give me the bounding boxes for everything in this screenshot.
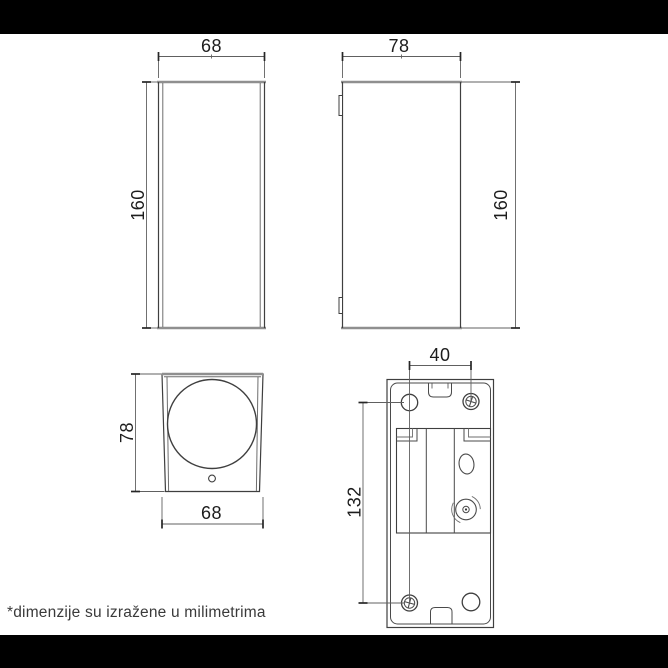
top-letterbox-bar bbox=[0, 0, 668, 34]
units-footnote: *dimenzije su izražene u milimetrima bbox=[7, 604, 427, 622]
top-width-dim-label: 68 bbox=[201, 503, 222, 523]
back-view: 40 132 bbox=[345, 345, 494, 628]
side-depth-dim-label: 78 bbox=[388, 36, 409, 56]
top-width-dimension: 68 bbox=[162, 497, 263, 529]
back-hole-height-dim-label: 132 bbox=[345, 486, 365, 518]
lens-circle bbox=[168, 380, 257, 469]
terminal-center-dot bbox=[465, 508, 467, 510]
mounting-hole-bottom-right bbox=[462, 593, 480, 611]
side-depth-dimension: 78 bbox=[343, 36, 461, 78]
top-view: 78 68 bbox=[117, 374, 263, 529]
front-height-dimension: 160 bbox=[128, 82, 157, 328]
bottom-letterbox-bar bbox=[0, 635, 668, 668]
front-view-body bbox=[159, 82, 265, 328]
side-height-dimension: 160 bbox=[462, 82, 520, 328]
back-outer-outline bbox=[387, 380, 494, 628]
technical-drawing-page: 68 160 78 bbox=[0, 0, 668, 668]
front-view: 68 160 bbox=[128, 36, 266, 328]
top-depth-dimension: 78 bbox=[117, 374, 165, 492]
side-view-body bbox=[343, 82, 461, 328]
front-width-dimension: 68 bbox=[159, 36, 265, 78]
side-height-dim-label: 160 bbox=[491, 189, 511, 221]
drain-hole bbox=[209, 475, 216, 482]
top-depth-dim-label: 78 bbox=[117, 422, 137, 443]
wall-bracket-tab-bottom bbox=[339, 298, 343, 314]
wall-bracket-tab-top bbox=[339, 96, 343, 116]
front-height-dim-label: 160 bbox=[128, 189, 148, 221]
back-hole-width-dim-label: 40 bbox=[429, 345, 450, 365]
side-view: 78 160 bbox=[339, 36, 520, 328]
front-width-dim-label: 68 bbox=[201, 36, 222, 56]
drawing-canvas: 68 160 78 bbox=[0, 0, 668, 668]
